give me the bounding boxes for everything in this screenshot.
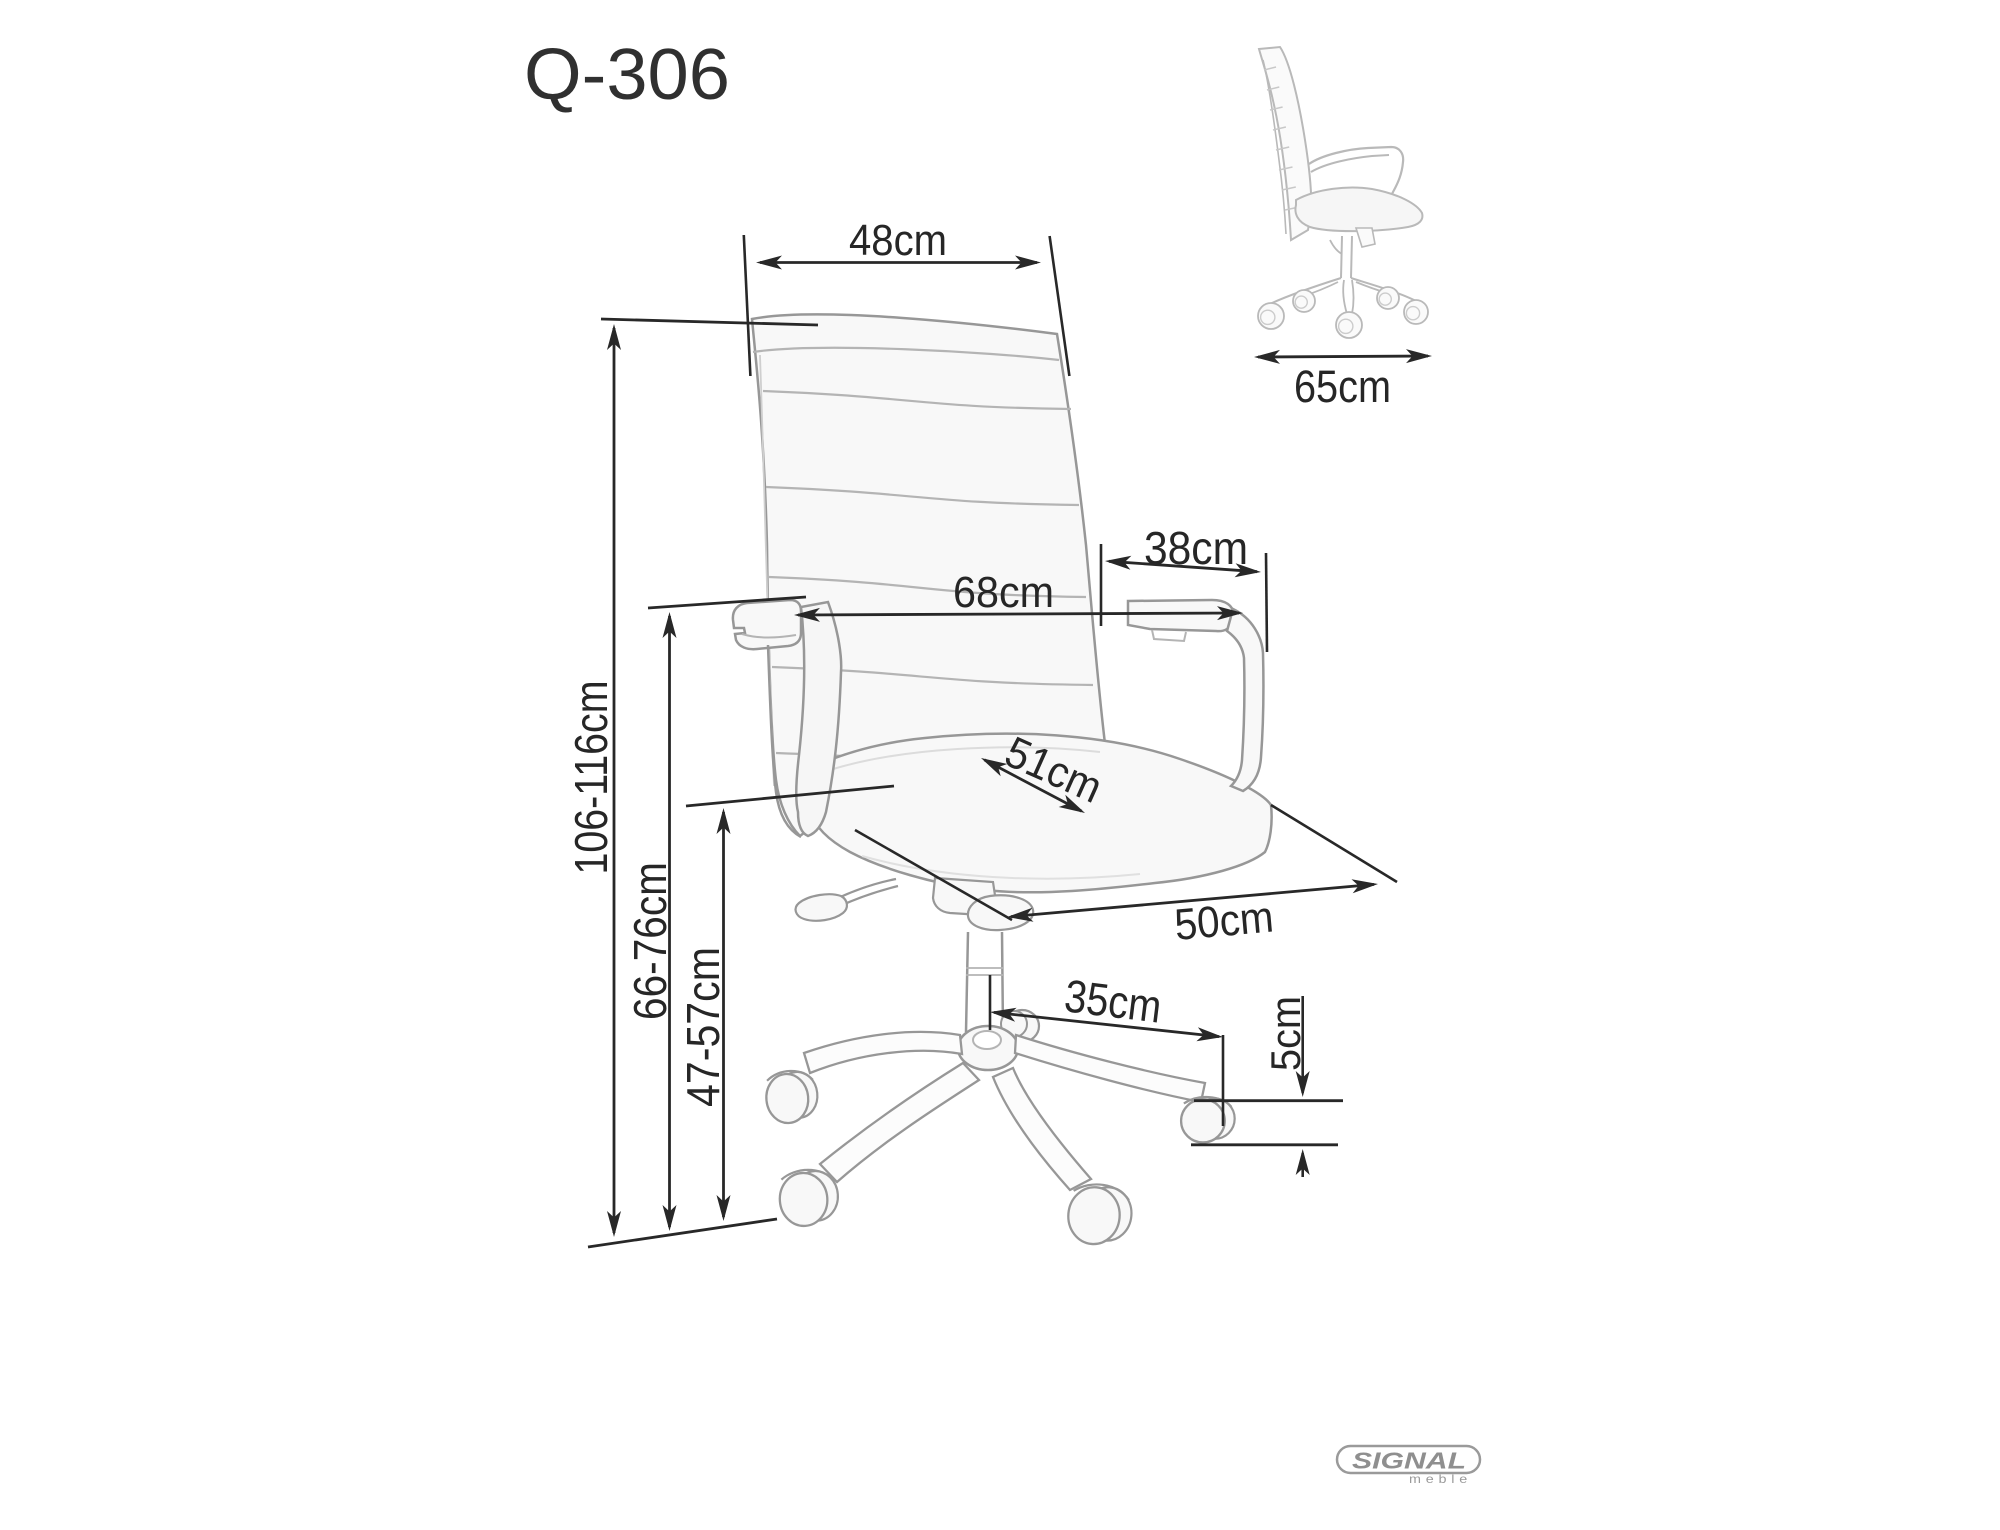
svg-text:106-116cm: 106-116cm xyxy=(565,681,617,875)
svg-text:SIGNAL: SIGNAL xyxy=(1352,1448,1466,1474)
svg-text:68cm: 68cm xyxy=(953,568,1054,617)
svg-text:48cm: 48cm xyxy=(849,216,947,265)
svg-text:65cm: 65cm xyxy=(1294,361,1391,412)
svg-text:Q-306: Q-306 xyxy=(524,35,730,115)
svg-text:47-57cm: 47-57cm xyxy=(677,947,729,1107)
svg-text:meble: meble xyxy=(1409,1472,1472,1486)
